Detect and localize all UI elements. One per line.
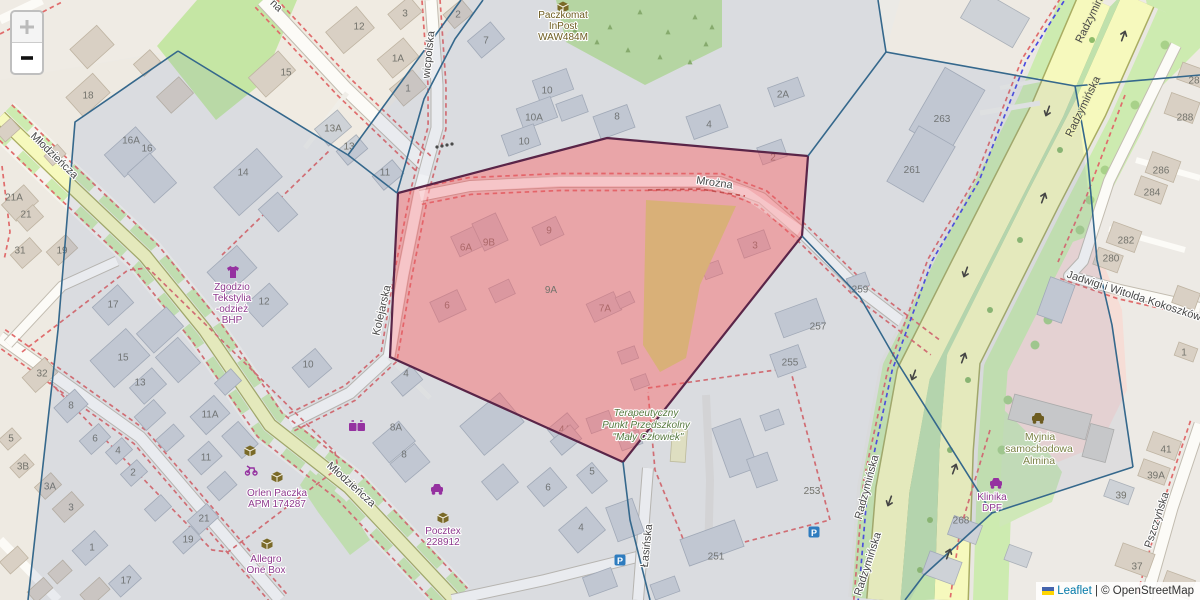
svg-text:BHP: BHP <box>222 315 243 326</box>
svg-text:31: 31 <box>14 246 26 257</box>
svg-text:9A: 9A <box>545 285 558 296</box>
svg-text:Pocztex: Pocztex <box>425 526 461 537</box>
svg-text:5: 5 <box>8 434 14 445</box>
svg-text:282: 282 <box>1118 236 1135 247</box>
svg-text:Orlen Paczka: Orlen Paczka <box>247 488 307 499</box>
svg-text:DPF: DPF <box>982 503 1002 514</box>
svg-text:APM 174287: APM 174287 <box>248 499 306 510</box>
svg-text:Myjnia: Myjnia <box>1025 431 1056 443</box>
svg-text:1: 1 <box>1181 348 1187 359</box>
svg-text:13A: 13A <box>324 124 342 135</box>
svg-text:41: 41 <box>1160 445 1172 456</box>
svg-text:Allegro: Allegro <box>250 554 282 565</box>
svg-text:Klinika: Klinika <box>977 492 1007 503</box>
svg-text:samochodowa: samochodowa <box>1005 443 1073 455</box>
svg-text:39A: 39A <box>1147 471 1165 482</box>
svg-text:288: 288 <box>1177 113 1194 124</box>
svg-text:37: 37 <box>1131 562 1143 573</box>
svg-text:18: 18 <box>82 91 94 102</box>
svg-text:Almina: Almina <box>1023 455 1055 467</box>
svg-text:28: 28 <box>1188 76 1200 87</box>
svg-text:228912: 228912 <box>426 537 460 548</box>
svg-text:39: 39 <box>1115 491 1127 502</box>
svg-text:284: 284 <box>1144 188 1161 199</box>
svg-text:32: 32 <box>36 369 48 380</box>
svg-text:InPost: InPost <box>549 21 578 32</box>
svg-text:253: 253 <box>804 486 821 497</box>
svg-text:P: P <box>617 556 623 566</box>
svg-text:Terapeutyczny: Terapeutyczny <box>614 408 680 419</box>
svg-text:3: 3 <box>402 9 408 20</box>
svg-text:1A: 1A <box>392 54 405 65</box>
svg-text:280: 280 <box>1103 254 1120 265</box>
svg-text:"Mały Człowiek": "Mały Człowiek" <box>612 432 683 443</box>
svg-text:-odzież: -odzież <box>216 304 248 315</box>
svg-text:Paczkomat: Paczkomat <box>538 10 588 21</box>
svg-text:12: 12 <box>353 22 365 33</box>
svg-text:21: 21 <box>20 210 32 221</box>
svg-text:3B: 3B <box>17 462 30 473</box>
svg-text:One Box: One Box <box>247 565 286 576</box>
svg-text:Tekstylia: Tekstylia <box>213 293 252 304</box>
svg-text:WAW484M: WAW484M <box>538 32 588 43</box>
svg-text:Zgodzio: Zgodzio <box>214 282 250 293</box>
svg-text:15: 15 <box>280 68 292 79</box>
svg-text:286: 286 <box>1153 166 1170 177</box>
svg-text:21A: 21A <box>5 193 23 204</box>
svg-text:P: P <box>811 528 817 538</box>
svg-text:Punkt Przedszkolny: Punkt Przedszkolny <box>602 420 691 431</box>
